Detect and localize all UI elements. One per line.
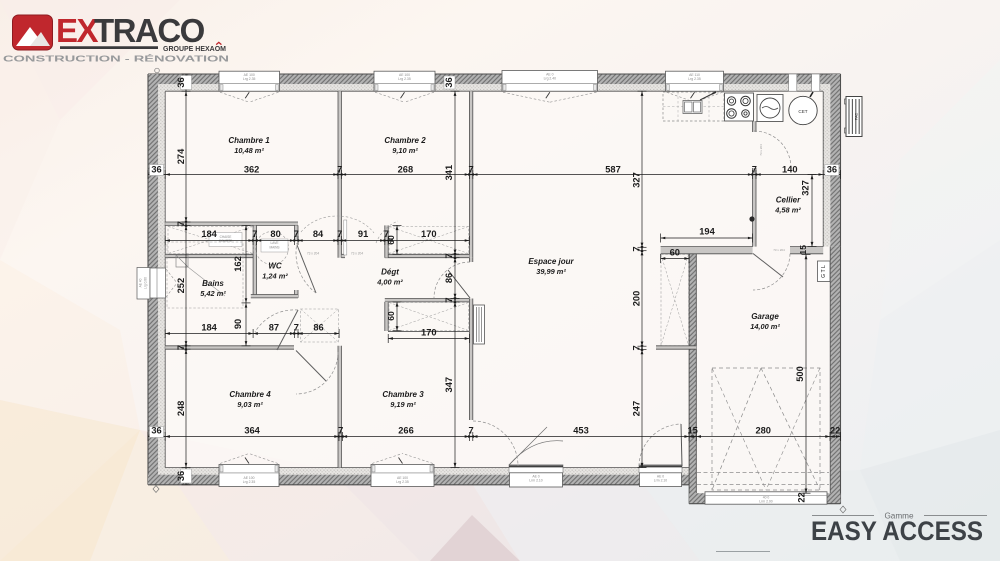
svg-text:327: 327 (801, 180, 811, 196)
svg-text:60: 60 (386, 235, 396, 245)
svg-text:90: 90 (233, 319, 243, 329)
svg-text:Garage: Garage (751, 312, 779, 321)
svg-text:500: 500 (795, 366, 805, 382)
svg-text:36: 36 (827, 165, 837, 175)
svg-text:CONSTRUCTION - RÉNOVATION: CONSTRUCTION - RÉNOVATION (3, 54, 229, 64)
svg-text:Lrm 2.00: Lrm 2.00 (759, 500, 772, 504)
svg-text:36: 36 (151, 165, 161, 175)
svg-text:TRACO: TRACO (94, 12, 205, 49)
svg-text:9,10 m²: 9,10 m² (392, 146, 418, 155)
svg-text:73 x 204: 73 x 204 (307, 252, 319, 256)
svg-text:Lrg 2.35: Lrg 2.35 (398, 77, 411, 81)
svg-text:G T L: G T L (821, 265, 827, 278)
svg-text:587: 587 (605, 165, 621, 175)
svg-text:CET: CET (798, 109, 807, 114)
svg-text:7: 7 (337, 165, 342, 175)
svg-text:Lrg 2.35: Lrg 2.35 (396, 480, 409, 484)
svg-text:LAVE: LAVE (271, 241, 279, 245)
svg-text:7: 7 (632, 345, 642, 350)
svg-text:Dégt: Dégt (381, 268, 399, 277)
svg-text:36: 36 (176, 471, 186, 481)
svg-text:7: 7 (444, 253, 454, 258)
svg-text:Chambre 4: Chambre 4 (229, 390, 271, 399)
svg-text:7: 7 (294, 323, 299, 333)
svg-text:91: 91 (358, 229, 368, 239)
svg-text:268: 268 (398, 165, 414, 175)
svg-text:162: 162 (233, 256, 243, 272)
svg-text:7: 7 (337, 229, 342, 239)
svg-text:364: 364 (244, 426, 260, 436)
svg-text:EASY ACCESS: EASY ACCESS (811, 516, 983, 546)
svg-text:7: 7 (632, 246, 642, 251)
svg-text:WC: WC (268, 262, 282, 271)
svg-text:266: 266 (398, 426, 414, 436)
svg-text:22: 22 (830, 426, 840, 436)
svg-text:36: 36 (176, 77, 186, 87)
svg-text:Lrg 2.35: Lrg 2.35 (688, 77, 701, 81)
svg-text:Lrm 2.10: Lrm 2.10 (529, 479, 542, 483)
svg-text:7: 7 (252, 229, 257, 239)
svg-text:86: 86 (313, 323, 323, 333)
svg-text:Chambre 1: Chambre 1 (228, 136, 270, 145)
svg-text:22: 22 (797, 492, 807, 502)
svg-text:7: 7 (469, 426, 474, 436)
svg-text:247: 247 (632, 401, 642, 417)
svg-text:Espace jour: Espace jour (528, 257, 574, 266)
svg-text:170: 170 (421, 328, 437, 338)
svg-text:Lrg 0.80: Lrg 0.80 (144, 277, 148, 289)
svg-text:252: 252 (176, 278, 186, 294)
svg-text:39,99 m²: 39,99 m² (536, 267, 566, 276)
svg-text:84: 84 (313, 229, 324, 239)
svg-text:7: 7 (338, 426, 343, 436)
svg-text:36: 36 (151, 426, 161, 436)
svg-text:4,00 m²: 4,00 m² (376, 278, 403, 287)
svg-text:Lrm 2.10: Lrm 2.10 (654, 479, 667, 483)
svg-text:AE 40: AE 40 (139, 278, 143, 287)
svg-text:170: 170 (421, 229, 437, 239)
svg-text:7: 7 (176, 345, 186, 350)
svg-text:73 x 204: 73 x 204 (773, 248, 785, 252)
svg-text:Lrg 2.40: Lrg 2.40 (544, 77, 557, 81)
svg-text:327: 327 (632, 172, 642, 188)
svg-text:9,03 m²: 9,03 m² (237, 400, 263, 409)
svg-text:GROUPE HEXAOM: GROUPE HEXAOM (163, 46, 226, 53)
svg-text:Bains: Bains (202, 279, 224, 288)
svg-text:347: 347 (444, 377, 454, 393)
svg-text:274: 274 (176, 148, 186, 164)
svg-text:9,19 m²: 9,19 m² (390, 400, 416, 409)
svg-text:184: 184 (201, 323, 217, 333)
svg-text:73 x 204: 73 x 204 (759, 144, 763, 156)
svg-text:Lrg 2.35: Lrg 2.35 (243, 77, 256, 81)
svg-text:Lrg 2.35: Lrg 2.35 (243, 480, 256, 484)
svg-text:COURTE: COURTE (219, 239, 232, 243)
svg-text:1,24 m²: 1,24 m² (262, 272, 288, 281)
svg-text:10,48 m²: 10,48 m² (234, 146, 264, 155)
svg-text:200: 200 (632, 291, 642, 307)
svg-text:15: 15 (798, 245, 808, 255)
svg-text:86: 86 (444, 273, 454, 283)
svg-text:7: 7 (444, 297, 454, 302)
svg-text:EX: EX (56, 12, 99, 49)
svg-text:15: 15 (688, 426, 698, 436)
svg-text:Chambre 2: Chambre 2 (384, 136, 426, 145)
svg-text:194: 194 (699, 227, 715, 237)
svg-text:PAC: PAC (855, 113, 859, 121)
svg-text:7: 7 (176, 221, 186, 226)
svg-text:140: 140 (782, 165, 798, 175)
svg-text:Chambre 3: Chambre 3 (382, 390, 424, 399)
svg-text:362: 362 (244, 165, 260, 175)
svg-text:7: 7 (294, 229, 299, 239)
svg-text:248: 248 (176, 401, 186, 417)
svg-text:280: 280 (755, 426, 771, 436)
svg-text:5,42 m²: 5,42 m² (200, 289, 226, 298)
svg-text:14,00 m²: 14,00 m² (750, 322, 780, 331)
svg-text:87: 87 (269, 323, 279, 333)
svg-text:7: 7 (469, 165, 474, 175)
svg-text:341: 341 (444, 165, 454, 181)
svg-text:60: 60 (670, 248, 680, 258)
svg-text:36: 36 (444, 77, 454, 87)
svg-text:7: 7 (752, 165, 757, 175)
svg-text:80: 80 (270, 229, 280, 239)
svg-text:453: 453 (573, 426, 589, 436)
svg-text:Cellier: Cellier (776, 196, 801, 205)
svg-text:MAINS: MAINS (269, 246, 279, 250)
svg-text:184: 184 (201, 229, 217, 239)
svg-text:4,58 m²: 4,58 m² (774, 206, 801, 215)
svg-text:60: 60 (386, 311, 396, 321)
svg-text:73 x 204: 73 x 204 (351, 252, 363, 256)
